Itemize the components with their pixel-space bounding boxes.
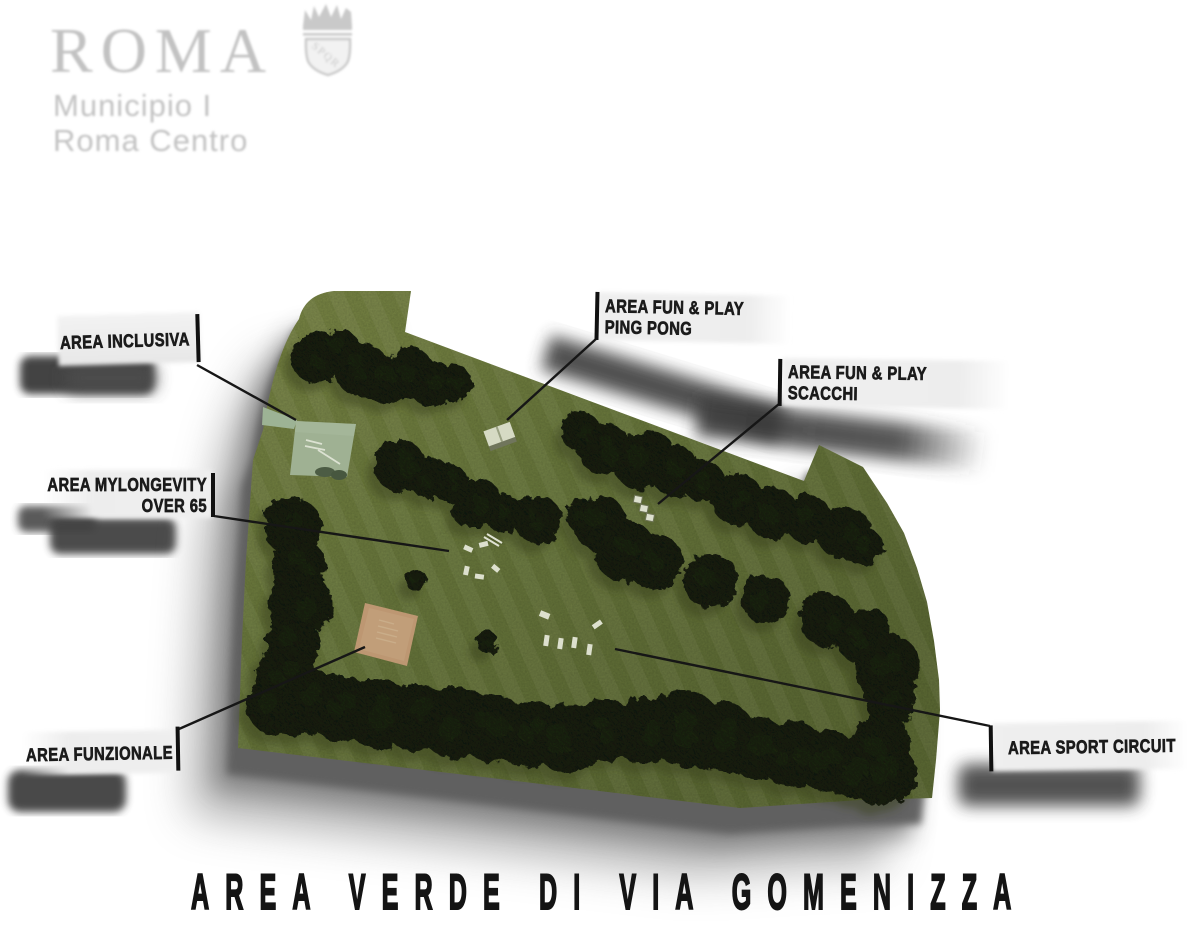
- svg-text:Roma Centro: Roma Centro: [53, 123, 248, 158]
- svg-text:Municipio I: Municipio I: [53, 88, 212, 123]
- svg-text:PING PONG: PING PONG: [605, 317, 693, 340]
- svg-text:AREA FUNZIONALE: AREA FUNZIONALE: [26, 742, 173, 766]
- svg-text:AREA FUN & PLAY: AREA FUN & PLAY: [788, 361, 927, 384]
- svg-text:AREA VERDE DI VIA GOMENIZZA: AREA VERDE DI VIA GOMENIZZA: [191, 865, 1027, 921]
- svg-text:ROMA: ROMA: [50, 15, 274, 86]
- svg-text:AREA SPORT CIRCUIT: AREA SPORT CIRCUIT: [1008, 735, 1176, 758]
- svg-text:OVER 65: OVER 65: [142, 495, 207, 516]
- svg-text:AREA INCLUSIVA: AREA INCLUSIVA: [60, 329, 190, 354]
- svg-text:AREA MYLONGEVITY: AREA MYLONGEVITY: [47, 474, 207, 495]
- svg-text:SCACCHI: SCACCHI: [788, 382, 859, 404]
- svg-text:AREA FUN & PLAY: AREA FUN & PLAY: [605, 296, 744, 320]
